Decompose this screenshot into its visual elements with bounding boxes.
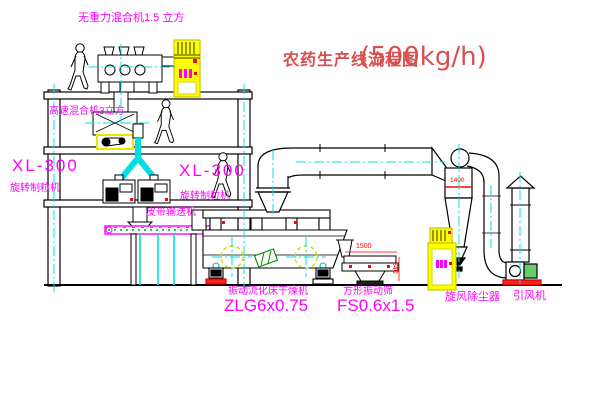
person-second-floor [155,100,174,144]
label-gravity-free-mixer: 无重力混合机1.5 立方 [78,13,184,25]
control-cabinet-right [428,228,456,290]
label-dryer-model: ZLG6x0.75 [224,297,308,315]
control-cabinet-top [174,40,200,97]
label-sieve-model: FS0.6x1.5 [337,297,415,315]
drawing-title-capacity: (500kg/h) [360,44,487,71]
belt-conveyor [105,210,216,285]
label-cyclone: 旋风除尘器 [445,292,500,304]
label-belt-conveyor: 皮带输送机 [146,208,196,219]
fluid-bed-dryer [203,210,347,284]
dimension-sieve-length: 1500 [356,243,372,250]
dimension-sieve-height: 340 [391,262,398,274]
cad-process-flow-drawing: 农药生产线流程图 (500kg/h) 无重力混合机1.5 立方 高速混合机3立方… [0,0,600,403]
label-granulator-right-model: XL-300 [179,162,246,180]
label-granulator-right-name: 旋转制粒机 [180,192,230,203]
label-fan: 引风机 [513,291,546,303]
induced-draft-fan [503,176,541,285]
label-high-speed-mixer: 高速混合机3立方 [49,107,125,118]
dimension-cyclone: 1400 [450,178,464,185]
person-top-floor [68,44,88,90]
label-granulator-left-name: 旋转制粒机 [10,184,60,195]
exhaust-duct [255,144,446,212]
granulators [103,175,170,203]
label-granulator-left-model: XL-300 [12,157,79,175]
